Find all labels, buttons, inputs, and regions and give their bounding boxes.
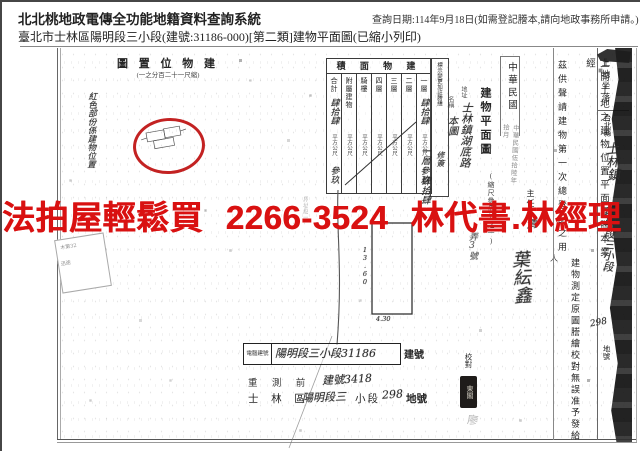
building-number-suffix: 建號	[404, 346, 424, 361]
footer-section-handwritten: 陽明段三	[302, 388, 347, 406]
area-col-annex: 附屬建物 平方公尺	[342, 74, 357, 193]
area-col-label: 四層	[375, 77, 383, 93]
column-rule-2	[597, 48, 598, 440]
address-label: 地址	[459, 86, 468, 102]
blob-text-1: 木第32	[60, 242, 77, 251]
footer-parcel-handwritten: 298	[382, 387, 404, 401]
statement-text-part2: 建物測定原圖謄繪校對無誤准予發給	[569, 258, 582, 442]
page-right-edge	[636, 48, 637, 442]
county-label: 台北縣	[602, 114, 613, 144]
scan-noise-specks	[0, 0, 1, 1]
area-col-value: 肆拾肆	[418, 98, 431, 125]
date-stamp: 中華民國伍拾陸年拾月	[496, 124, 519, 191]
area-col-unit: 平方公尺	[361, 134, 367, 156]
query-date-note: 查詢日期:114年9月18日(如需登記謄本,請向地政事務所申請。)	[372, 11, 639, 26]
faint-stamp: 廖	[462, 413, 481, 437]
roc-box-top	[500, 56, 520, 57]
area-col-label: 二層	[405, 77, 413, 93]
parcel-number-label: 地號	[601, 345, 612, 371]
area-col-label: 附屬建物	[345, 77, 353, 109]
area-table-title: 積 面 物 建	[327, 59, 431, 74]
roc-label: 中華民國	[504, 62, 518, 122]
area-col-label: 合計	[330, 77, 338, 93]
resurvey-value-handwritten: 建號3418	[322, 370, 373, 389]
mark-change-label: 標示變更加註謄繕	[436, 62, 442, 142]
foreclosure-ad-watermark: 法拍屋輕鬆買 2266-3524 林代書.林經理	[2, 191, 640, 239]
system-title: 北北桃地政電傳全功能地籍資料查詢系統	[18, 8, 261, 28]
building-number-handwritten: 陽明段三小段31186	[272, 344, 400, 364]
footer-parcel-label: 地號	[406, 391, 427, 406]
resurvey-label: 重 測 前	[248, 375, 311, 389]
plan-dimension-left: 13.60	[361, 246, 369, 276]
footer-subsection-printed: 小段	[355, 391, 380, 406]
column-rule-1	[553, 48, 554, 440]
area-col-unit: 平方公尺	[406, 134, 412, 156]
area-col-floor4: 四層 平方公尺	[372, 74, 387, 193]
window-border-top	[0, 0, 640, 2]
registry-seal: 東閣	[460, 376, 477, 408]
area-col-value: 參玖	[328, 166, 341, 184]
proofread-label: 校對	[463, 353, 474, 375]
area-col-label: 騎樓	[360, 77, 368, 93]
location-map-scale: (一之分百二十一尺縮)	[112, 69, 224, 79]
land-location-label: 土地坐落	[600, 58, 612, 108]
name-label: 名稱	[446, 96, 455, 112]
building-number-box-prefix: 電腦建號	[244, 344, 272, 364]
building-number-box: 電腦建號 陽明段三小段31186	[243, 343, 401, 365]
area-col-total: 合計 肆拾肆 平方公尺 參玖	[327, 74, 342, 193]
area-table-columns: 合計 肆拾肆 平方公尺 參玖 附屬建物 平方公尺 騎樓 平方公尺 四層 平方公尺…	[327, 74, 431, 193]
plan-dimension-bottom: 4.30	[376, 315, 390, 323]
area-col-unit: 平方公尺	[346, 134, 352, 156]
floor-plan-title: 建物平面圖	[477, 87, 493, 167]
area-col-unit: 平方公尺	[331, 134, 337, 156]
document-subject-line: 臺北市士林區陽明段三小段(建號:31186-000)[第二類]建物平面圖(已縮小…	[18, 28, 421, 45]
red-area-handwritten-note: 紅色部份係建物位置	[83, 92, 97, 177]
area-col-label: 一層	[420, 77, 428, 93]
area-col-floor3: 三層 平方公尺	[387, 74, 402, 193]
area-col-value: 肆拾肆	[328, 98, 341, 125]
area-col-arcade: 騎樓 平方公尺	[357, 74, 372, 193]
blob-text-2: 迅途	[60, 259, 71, 267]
page-bottom-edge-outer	[57, 439, 637, 440]
page-top-edge	[20, 46, 638, 47]
surveyor-signature: 葉紜鑫	[506, 249, 537, 345]
area-col-unit: 平方公尺	[391, 134, 397, 156]
area-col-label: 三層	[390, 77, 398, 93]
page-bottom-edge-inner	[57, 442, 637, 443]
area-col-unit: 平方公尺	[376, 134, 382, 156]
whiteout-stamp-blob: 木第32 迅途	[54, 232, 112, 293]
footer-district-printed: 士 林 區	[248, 391, 310, 406]
area-col-floor2: 二層 平方公尺	[402, 74, 417, 193]
